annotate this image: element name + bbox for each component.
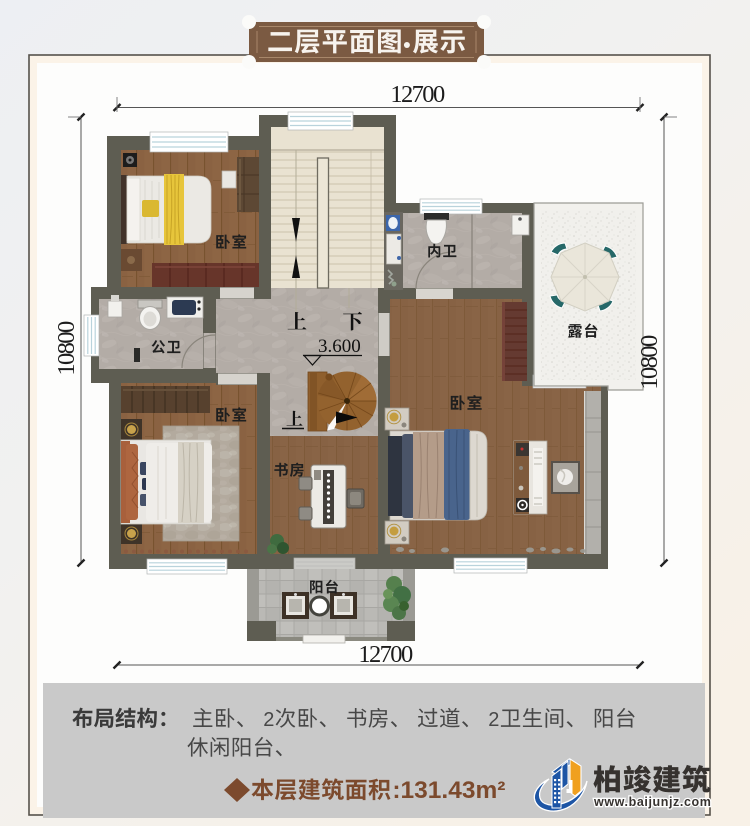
svg-text:10800: 10800	[53, 321, 80, 376]
svg-text::131.43m²: :131.43m²	[392, 777, 505, 804]
svg-text:10800: 10800	[636, 335, 663, 390]
svg-text:3.600: 3.600	[318, 336, 361, 357]
svg-text:2: 2	[488, 709, 499, 731]
svg-text:2: 2	[263, 709, 274, 731]
svg-text:12700: 12700	[358, 641, 413, 668]
svg-text:www.baijunjz.com: www.baijunjz.com	[593, 795, 711, 809]
svg-text:12700: 12700	[390, 81, 445, 108]
